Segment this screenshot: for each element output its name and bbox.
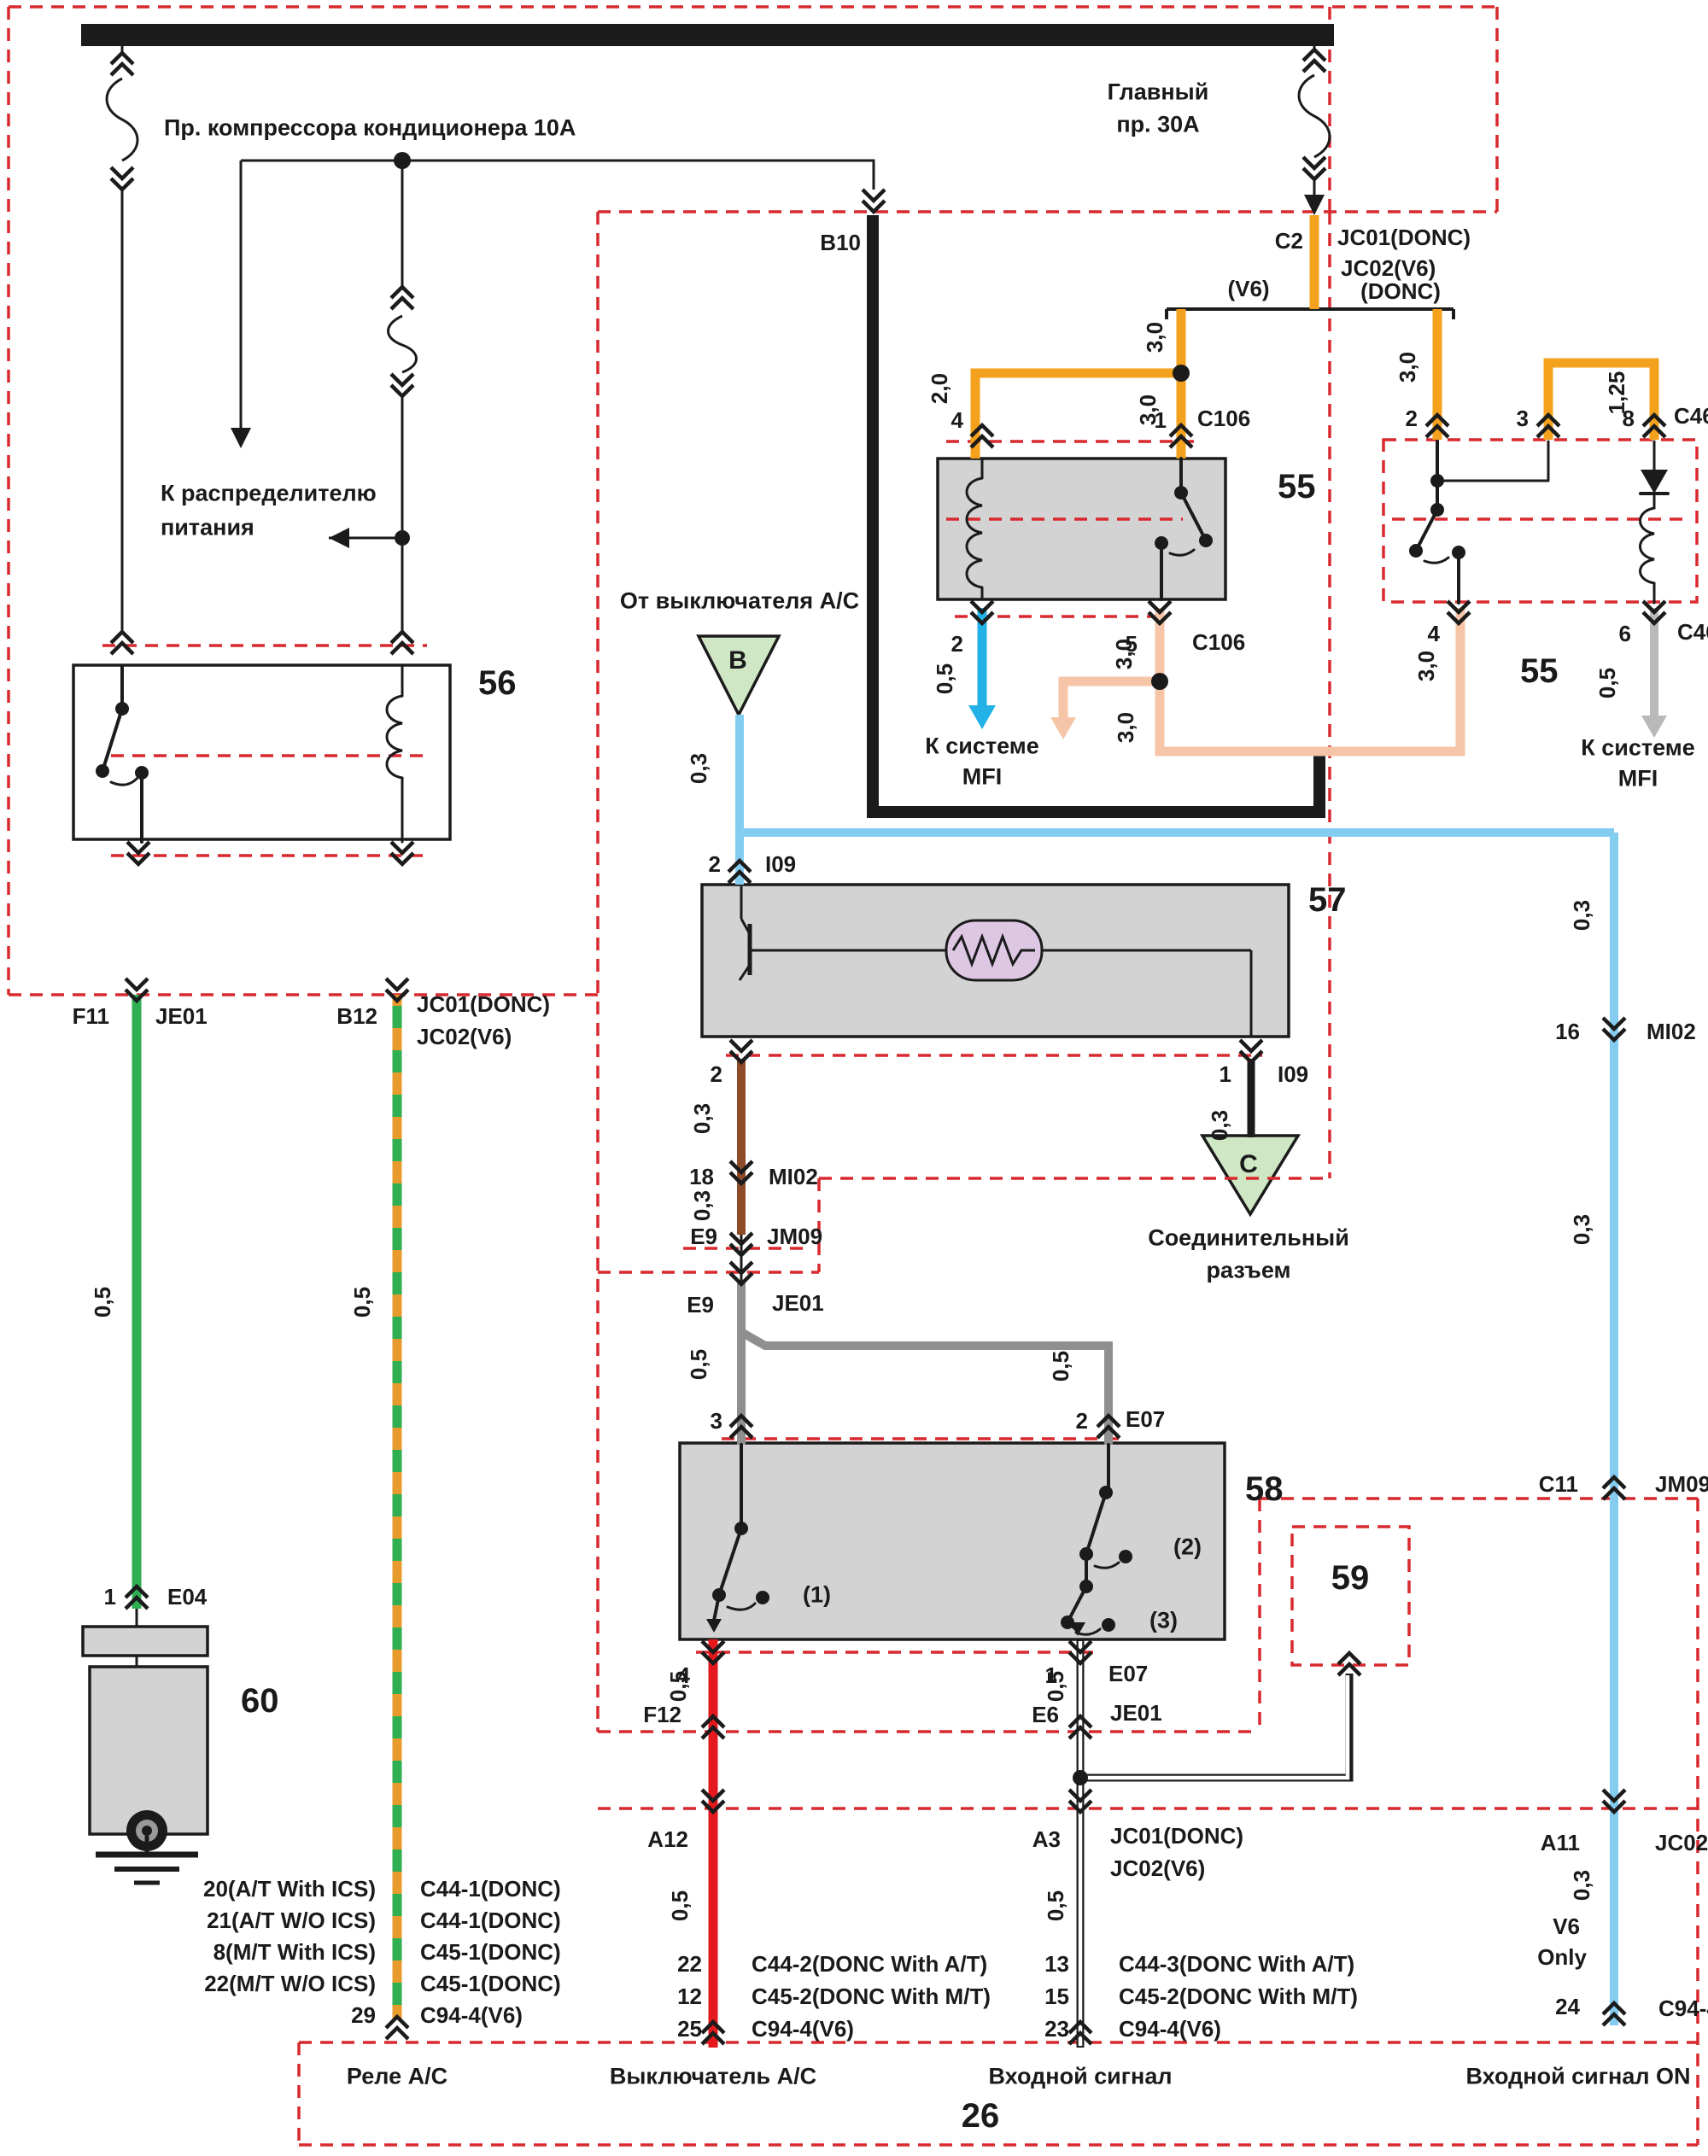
- connector-label: E07: [1126, 1408, 1165, 1430]
- component-number: 55: [1278, 470, 1316, 504]
- component-number: 26: [962, 2099, 1000, 2133]
- connector-label: C: [1239, 1152, 1258, 1177]
- connector-label: B10: [820, 231, 861, 254]
- connector-label: 12: [677, 1985, 702, 2007]
- connector-label: E9: [687, 1294, 714, 1316]
- connector-label: C2: [1275, 230, 1303, 252]
- connector-label: 21(A/T W/O ICS): [207, 1909, 376, 1931]
- wire-gauge-label: 3,0: [1114, 712, 1137, 743]
- connector-label: C94-4: [1658, 1997, 1708, 2019]
- wire-gauge-label: 0,5: [91, 1287, 114, 1318]
- annotation-label: Входной сигнал ON: [1466, 2065, 1691, 2089]
- wire-gauge-label: 0,5: [687, 1349, 710, 1380]
- connector-label: A12: [647, 1828, 688, 1850]
- wiring-diagram-page: Пр. компрессора кондиционера 10АГлавныйп…: [0, 0, 1708, 2156]
- connector-label: 6: [1619, 622, 1631, 645]
- connector-label: 4: [1428, 622, 1440, 645]
- wire-gauge-label: 0,3: [691, 1190, 713, 1221]
- connector-label: I09: [765, 853, 796, 875]
- connector-label: (V6): [1227, 278, 1269, 300]
- connector-label: C44-1(DONC): [420, 1878, 561, 1900]
- annotation-label: MFI: [1618, 768, 1658, 791]
- connector-label: C106: [1197, 407, 1250, 429]
- diagram-labels: Пр. компрессора кондиционера 10АГлавныйп…: [0, 0, 1708, 2156]
- connector-label: 2: [1406, 407, 1418, 429]
- annotation-label: От выключателя А/С: [620, 590, 859, 613]
- connector-label: 15: [1044, 1985, 1069, 2007]
- connector-label: 16: [1555, 1020, 1580, 1043]
- connector-label: 8(M/T With ICS): [213, 1941, 376, 1963]
- annotation-label: (1): [803, 1584, 831, 1607]
- connector-label: E04: [167, 1586, 207, 1608]
- connector-label: JE01: [155, 1005, 208, 1027]
- wire-gauge-label: 0,5: [1044, 1671, 1067, 1702]
- component-number: 59: [1331, 1561, 1370, 1595]
- connector-label: 13: [1044, 1953, 1069, 1975]
- annotation-label: К системе: [925, 735, 1038, 758]
- wire-gauge-label: 0,3: [1571, 1870, 1593, 1901]
- wire-gauge-label: 0,3: [687, 753, 710, 784]
- connector-label: JC02(V6): [1110, 1857, 1205, 1879]
- connector-label: 3: [1517, 407, 1529, 429]
- connector-label: 1: [1155, 409, 1167, 431]
- wire-gauge-label: 3,0: [1144, 322, 1166, 353]
- connector-label: C46: [1674, 405, 1708, 427]
- annotation-label: Выключатель А/С: [610, 2065, 816, 2089]
- component-number: 60: [241, 1684, 279, 1718]
- annotation-label: питания: [161, 517, 254, 540]
- connector-label: A11: [1541, 1832, 1580, 1854]
- wire-gauge-label: 0,3: [1208, 1110, 1231, 1141]
- annotation-label: Входной сигнал: [989, 2065, 1173, 2089]
- connector-label: C45-2(DONC With M/T): [1119, 1985, 1358, 2007]
- connector-label: C45-1(DONC): [420, 1972, 561, 1995]
- wire-gauge-label: 0,5: [1596, 668, 1618, 698]
- connector-label: C44-1(DONC): [420, 1909, 561, 1931]
- connector-label: 2: [709, 853, 721, 875]
- connector-label: 2: [951, 633, 963, 655]
- connector-label: B: [728, 648, 747, 674]
- connector-label: 2: [711, 1063, 722, 1085]
- connector-label: JE01: [1110, 1702, 1162, 1724]
- connector-label: C44-2(DONC With A/T): [752, 1953, 987, 1975]
- connector-label: 25: [677, 2018, 702, 2040]
- connector-label: C94-4(V6): [1119, 2018, 1221, 2040]
- connector-label: B12: [336, 1005, 377, 1027]
- connector-label: MI02: [769, 1166, 818, 1188]
- annotation-label: Пр. компрессора кондиционера 10А: [164, 117, 576, 140]
- wire-gauge-label: 0,5: [669, 1890, 691, 1921]
- connector-label: 1: [104, 1586, 116, 1608]
- connector-label: C46: [1677, 621, 1708, 643]
- annotation-label: Главный: [1108, 81, 1209, 104]
- wire-gauge-label: 3,0: [1415, 651, 1437, 681]
- connector-label: A3: [1032, 1828, 1061, 1850]
- connector-label: 24: [1555, 1995, 1580, 2018]
- connector-label: JM09: [1655, 1473, 1708, 1495]
- connector-label: JC01(DONC): [1337, 226, 1471, 248]
- connector-label: 23: [1044, 2018, 1069, 2040]
- connector-label: 3: [711, 1410, 722, 1432]
- wire-gauge-label: 0,5: [351, 1287, 373, 1318]
- connector-label: F12: [643, 1703, 681, 1726]
- connector-label: JC02: [1655, 1832, 1708, 1854]
- wire-gauge-label: 2,0: [928, 373, 951, 404]
- wire-gauge-label: 0,3: [691, 1103, 713, 1134]
- connector-label: E6: [1032, 1703, 1059, 1726]
- connector-label: 20(A/T With ICS): [203, 1878, 376, 1900]
- connector-label: I09: [1278, 1063, 1308, 1085]
- annotation-label: К распределителю: [161, 482, 377, 505]
- wire-gauge-label: 0,3: [1571, 900, 1593, 931]
- annotation-label: MFI: [962, 766, 1003, 789]
- connector-label: C106: [1192, 631, 1245, 653]
- connector-label: C45-1(DONC): [420, 1941, 561, 1963]
- connector-label: 1: [1220, 1063, 1231, 1085]
- wire-gauge-label: 3,0: [1396, 352, 1418, 383]
- connector-label: C44-3(DONC With A/T): [1119, 1953, 1354, 1975]
- connector-label: 8: [1623, 407, 1635, 429]
- wire-gauge-label: 0,5: [1050, 1351, 1072, 1382]
- connector-label: 4: [951, 409, 963, 431]
- connector-label: JE01: [772, 1292, 824, 1314]
- annotation-label: Only: [1537, 1946, 1587, 1968]
- connector-label: 22(M/T W/O ICS): [204, 1972, 376, 1995]
- component-number: 58: [1245, 1472, 1284, 1506]
- connector-label: JC01(DONC): [417, 993, 550, 1015]
- wire-gauge-label: 3,0: [1113, 639, 1135, 669]
- connector-label: F11: [73, 1005, 109, 1027]
- component-number: 56: [478, 666, 517, 700]
- annotation-label: Соединительный: [1148, 1227, 1349, 1250]
- wire-gauge-label: 0,3: [1571, 1214, 1593, 1245]
- connector-label: JC02(V6): [1341, 257, 1436, 279]
- component-number: 57: [1308, 883, 1347, 917]
- connector-label: JM09: [767, 1225, 822, 1247]
- connector-label: JC01(DONC): [1110, 1825, 1243, 1847]
- connector-label: E07: [1108, 1662, 1148, 1685]
- wire-gauge-label: 0,5: [933, 663, 956, 694]
- component-number: 55: [1520, 654, 1559, 688]
- annotation-label: Реле А/С: [347, 2065, 447, 2089]
- connector-label: JC02(V6): [417, 1025, 512, 1048]
- connector-label: MI02: [1647, 1020, 1696, 1043]
- wire-gauge-label: 0,5: [1044, 1890, 1067, 1921]
- connector-label: 18: [689, 1166, 714, 1188]
- wire-gauge-label: 0,5: [667, 1671, 689, 1702]
- connector-label: (DONC): [1360, 280, 1441, 302]
- connector-label: 22: [677, 1953, 702, 1975]
- connector-label: C94-4(V6): [420, 2004, 523, 2026]
- connector-label: C45-2(DONC With M/T): [752, 1985, 991, 2007]
- annotation-label: пр. 30А: [1116, 114, 1199, 137]
- annotation-label: разъем: [1207, 1259, 1291, 1282]
- connector-label: 29: [351, 2004, 376, 2026]
- connector-label: E9: [690, 1225, 717, 1247]
- annotation-label: К системе: [1581, 737, 1694, 760]
- connector-label: C11: [1539, 1473, 1578, 1495]
- annotation-label: (3): [1149, 1610, 1178, 1633]
- connector-label: C94-4(V6): [752, 2018, 854, 2040]
- annotation-label: V6: [1553, 1915, 1580, 1937]
- connector-label: 2: [1076, 1410, 1088, 1432]
- annotation-label: (2): [1173, 1536, 1202, 1559]
